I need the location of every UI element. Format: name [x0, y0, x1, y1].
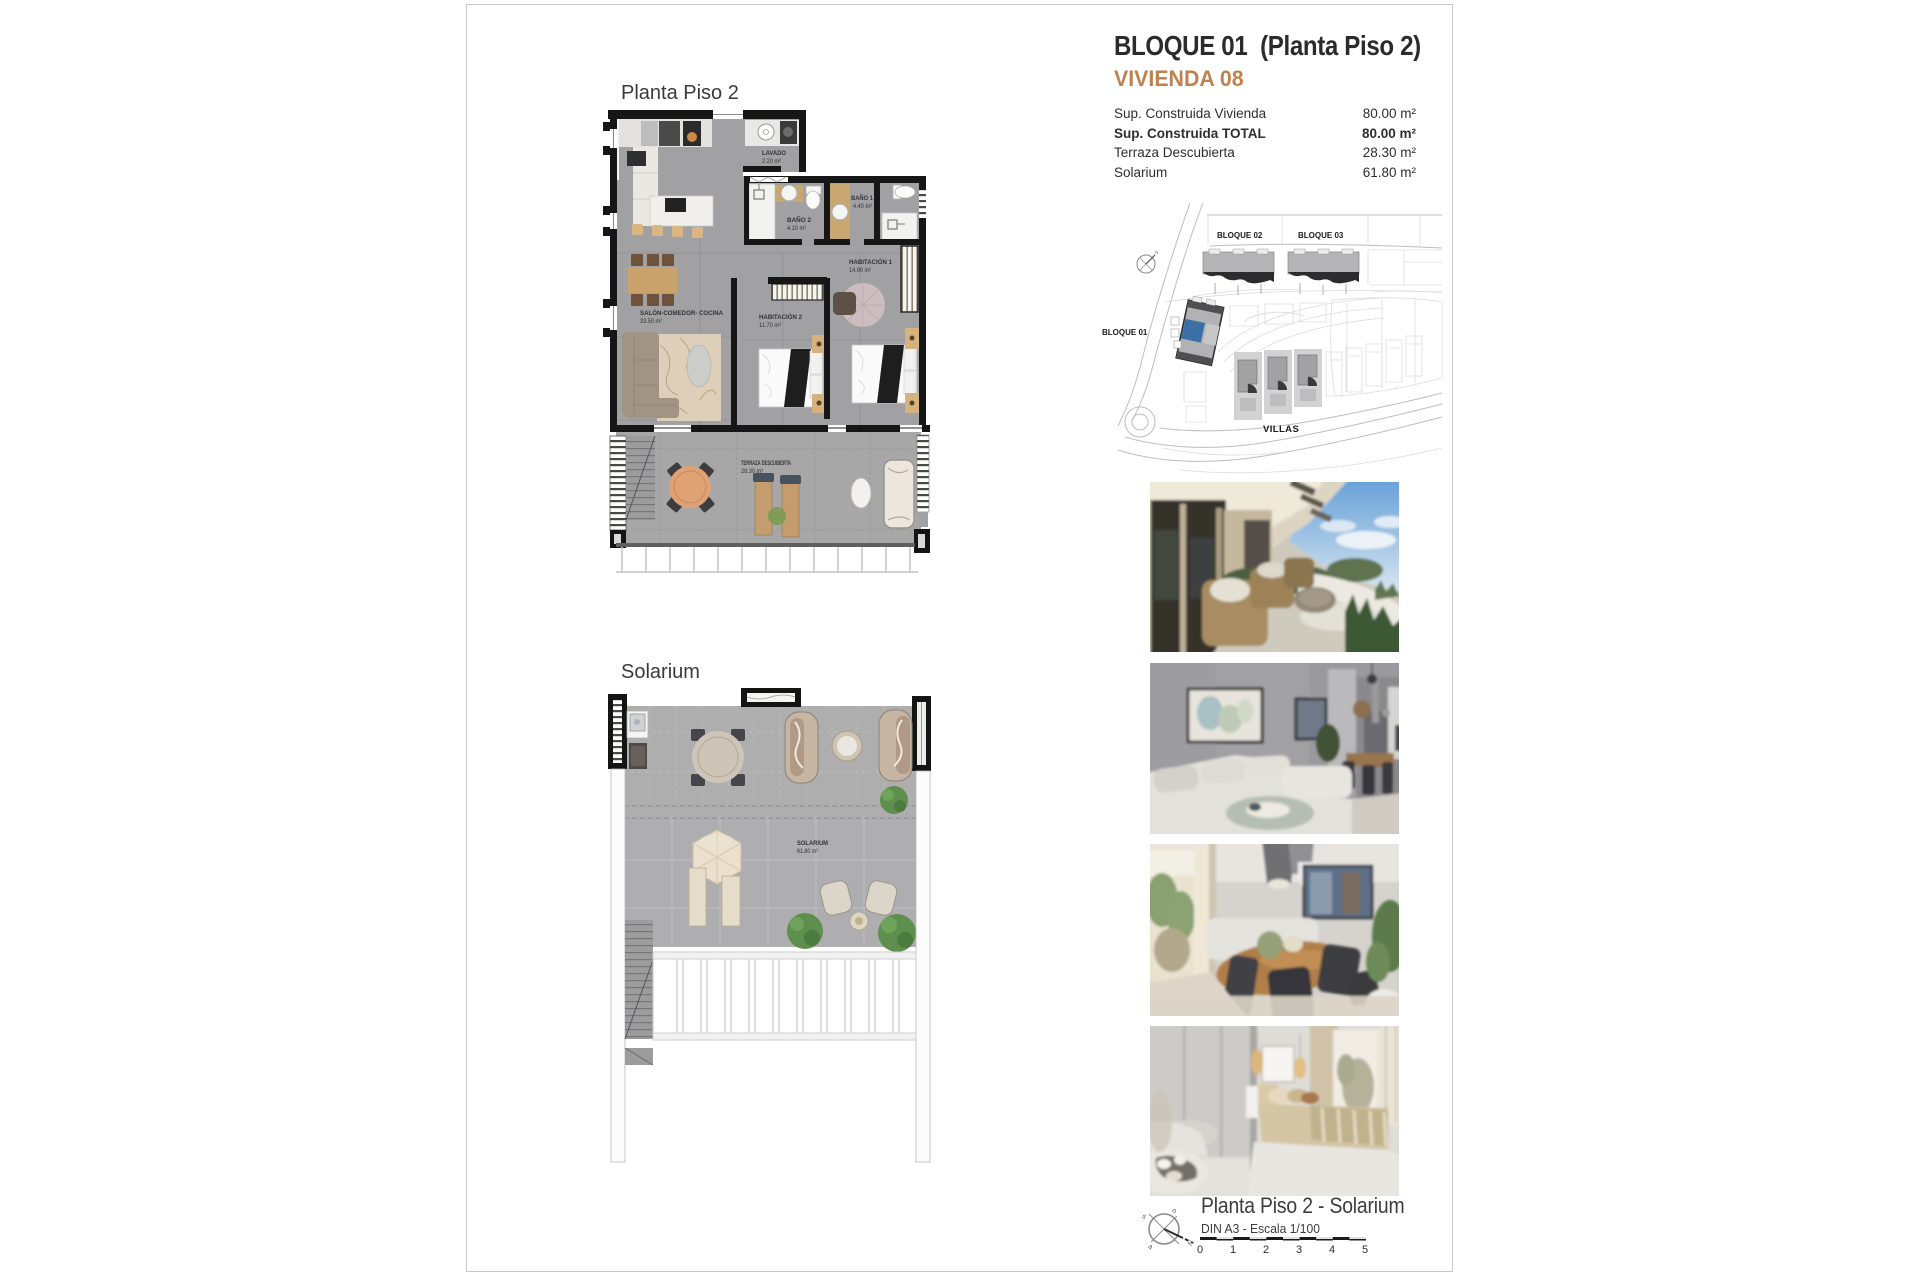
svg-text:4.10 m²: 4.10 m²	[787, 225, 806, 232]
svg-text:61.80 m²: 61.80 m²	[797, 848, 818, 855]
svg-text:4.40 m²: 4.40 m²	[853, 203, 872, 210]
svg-text:33.50 m²: 33.50 m²	[640, 318, 662, 325]
svg-text:5: 5	[1362, 1244, 1368, 1256]
svg-text:BAÑO 1: BAÑO 1	[851, 193, 873, 202]
svg-text:BAÑO 2: BAÑO 2	[787, 215, 811, 224]
svg-text:11.70 m²: 11.70 m²	[759, 322, 781, 329]
svg-text:N: N	[1155, 250, 1158, 255]
svg-text:SOLARIUM: SOLARIUM	[797, 840, 828, 847]
svg-text:s: s	[1140, 1213, 1147, 1221]
svg-text:HABITACIÓN 2: HABITACIÓN 2	[759, 312, 802, 321]
svg-text:2.20 m²: 2.20 m²	[762, 158, 781, 165]
svg-text:o: o	[1170, 1207, 1177, 1215]
svg-text:2: 2	[1263, 1244, 1269, 1256]
svg-text:3: 3	[1296, 1244, 1302, 1256]
svg-text:BLOQUE 02: BLOQUE 02	[1217, 231, 1263, 240]
svg-text:LAVADO: LAVADO	[762, 150, 786, 157]
svg-text:SALÓN-COMEDOR- COCINA: SALÓN-COMEDOR- COCINA	[640, 308, 723, 317]
svg-text:BLOQUE 03: BLOQUE 03	[1298, 231, 1344, 240]
svg-text:14.90 m²: 14.90 m²	[849, 267, 871, 274]
svg-text:BLOQUE 01: BLOQUE 01	[1102, 328, 1148, 337]
svg-text:TERRAZA DESCUBIERTA: TERRAZA DESCUBIERTA	[741, 460, 791, 467]
svg-text:4: 4	[1329, 1244, 1335, 1256]
svg-text:a: a	[1146, 1243, 1153, 1251]
svg-text:HABITACIÓN 1: HABITACIÓN 1	[849, 257, 892, 266]
svg-text:VILLAS: VILLAS	[1263, 424, 1299, 435]
svg-text:1: 1	[1230, 1244, 1236, 1256]
svg-text:0: 0	[1197, 1244, 1203, 1256]
svg-text:N: N	[1187, 1239, 1196, 1247]
